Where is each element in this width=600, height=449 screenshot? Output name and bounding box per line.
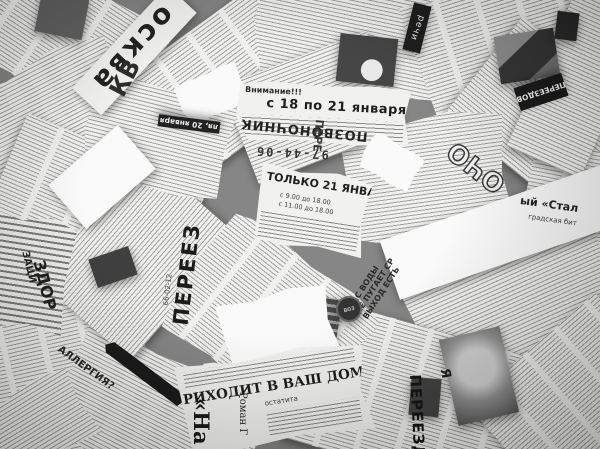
roman-vertical-fragment: Роман Г: [237, 392, 248, 435]
attention-text: Внимание!!!: [245, 85, 302, 97]
voz-stamp-text: воз: [343, 304, 356, 315]
na-vertical-fragment: «На: [189, 398, 214, 445]
photo-fragment: [554, 11, 579, 41]
dates-banner-text: с 18 по 21 января: [266, 96, 407, 118]
kettle-photo: [336, 33, 399, 87]
round-stamp-voz: воз: [336, 296, 362, 322]
ostatita-fragment: остатита: [264, 394, 298, 407]
strip-rech-text: речи: [408, 14, 426, 42]
newspaper-collage-photo: осква КВ речи ля, 20 января Внимание!!! …: [0, 0, 600, 449]
